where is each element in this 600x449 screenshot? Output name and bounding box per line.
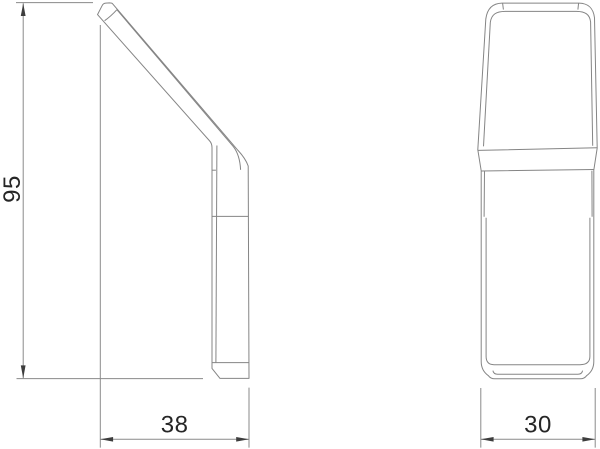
- technical-drawing-canvas: 95 38 30: [0, 0, 600, 449]
- height-extension-lines: [16, 3, 203, 379]
- height-dimension-label: 95: [0, 175, 26, 203]
- front-view-lower-inner-edges: [486, 218, 590, 365]
- width-dimension-label: 30: [524, 411, 552, 438]
- arrowhead-up: [21, 3, 26, 16]
- arrowhead-right: [236, 437, 249, 442]
- width-dimension: 30: [481, 388, 595, 448]
- side-view-arm-inner-edge: [117, 10, 241, 170]
- side-view-drawing: [98, 3, 250, 379]
- depth-dimension: 38: [100, 25, 249, 448]
- front-view-mid-inner-edges: [484, 171, 592, 217]
- front-view-outline: [478, 3, 597, 379]
- arrowhead-left: [481, 437, 494, 442]
- depth-extension-lines: [100, 25, 249, 448]
- front-view-corner-ticks: [503, 3, 579, 9]
- front-view-band-lines: [478, 148, 597, 171]
- arrowhead-left: [100, 437, 113, 442]
- arrowhead-right: [582, 437, 595, 442]
- side-view-post-inner-edge: [216, 146, 217, 363]
- depth-dimension-label: 38: [161, 411, 189, 438]
- arrowhead-down: [21, 365, 26, 378]
- side-view-outline: [98, 3, 250, 379]
- height-dimension: 95: [0, 3, 203, 379]
- drawing-svg: 95 38 30: [0, 0, 600, 449]
- front-view-upper-inner-edges: [484, 11, 593, 146]
- front-view-bottom-lip-line: [493, 371, 583, 375]
- side-view-tip-cap-line: [105, 10, 117, 21]
- front-view-drawing: [478, 3, 597, 379]
